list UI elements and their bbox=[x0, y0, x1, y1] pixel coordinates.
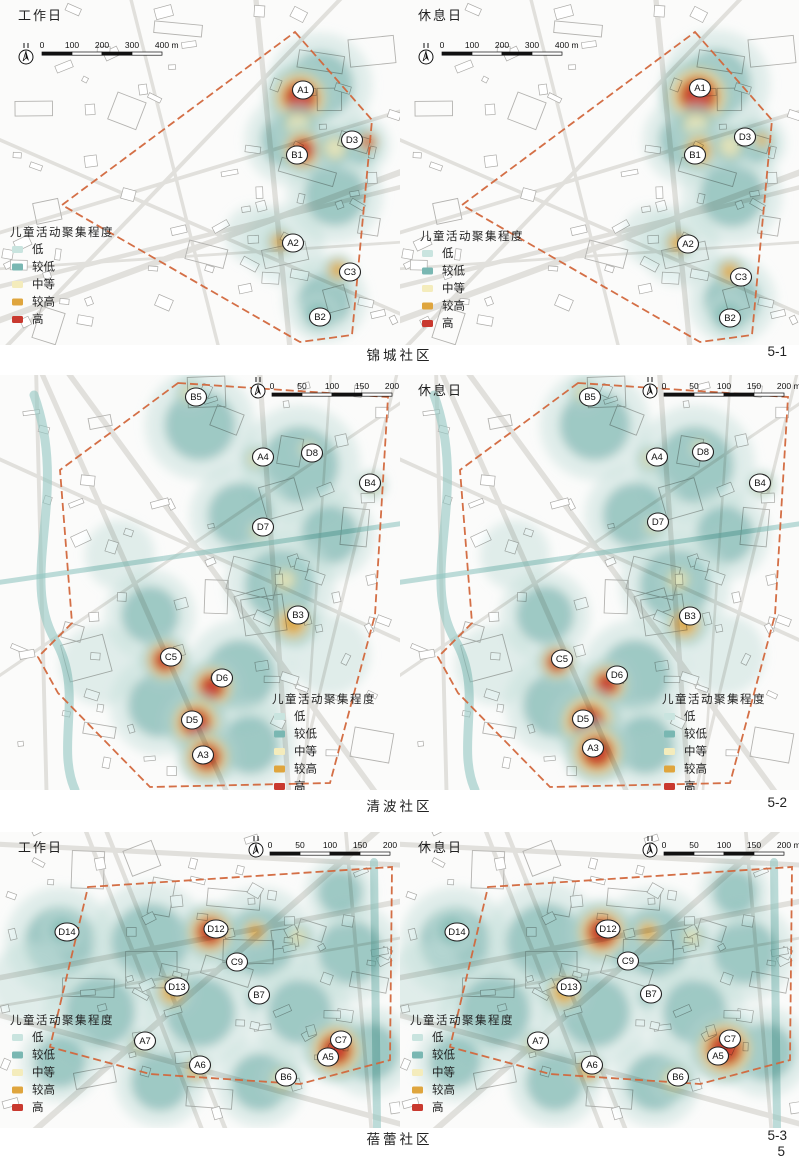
legend-label-4: 较高 bbox=[432, 1083, 455, 1097]
svg-text:D3: D3 bbox=[739, 132, 751, 143]
map-panel-qingbo-restday: 050100150200m休息日儿童活动聚集程度低较低中等较高高B5A4D8B4… bbox=[400, 375, 799, 790]
legend-label-1: 低 bbox=[32, 243, 44, 256]
svg-text:C5: C5 bbox=[556, 654, 568, 665]
poi-marker-C3: C3 bbox=[340, 263, 361, 281]
panel-title: 工作日 bbox=[18, 840, 63, 855]
legend-swatch-4 bbox=[274, 766, 285, 773]
poi-marker-A2: A2 bbox=[678, 235, 699, 253]
map-panel-jincheng-workday: 0100200300400m工作日儿童活动聚集程度低较低中等较高高A1D3B1A… bbox=[0, 0, 400, 345]
poi-marker-A7: A7 bbox=[135, 1032, 156, 1050]
poi-marker-B2: B2 bbox=[310, 308, 331, 326]
poi-marker-B3: B3 bbox=[680, 607, 701, 625]
panel-title: 工作日 bbox=[18, 8, 63, 23]
caption-row-qingbo: 清波社区 5-2 bbox=[0, 795, 799, 815]
poi-marker-D8: D8 bbox=[302, 444, 323, 462]
svg-text:150: 150 bbox=[353, 840, 367, 850]
svg-text:D14: D14 bbox=[58, 927, 75, 938]
poi-marker-D12: D12 bbox=[596, 920, 620, 938]
svg-text:D13: D13 bbox=[560, 982, 577, 993]
legend-swatch-2 bbox=[664, 731, 675, 738]
legend-swatch-3 bbox=[274, 748, 285, 755]
page-number: 5 bbox=[777, 1144, 785, 1159]
poi-marker-D14: D14 bbox=[445, 923, 469, 941]
legend-title: 儿童活动聚集程度 bbox=[272, 692, 376, 706]
svg-text:A7: A7 bbox=[139, 1036, 151, 1047]
legend-swatch-1 bbox=[12, 1034, 23, 1041]
legend-label-2: 较低 bbox=[432, 1048, 455, 1062]
community-name-jincheng: 锦城社区 bbox=[367, 344, 433, 364]
map-panel-beilei-workday: 050100150200m工作日儿童活动聚集程度低较低中等较高高D14D12C9… bbox=[0, 832, 400, 1128]
legend-label-2: 较低 bbox=[294, 727, 317, 741]
legend-swatch-4 bbox=[412, 1087, 423, 1094]
legend-label-4: 较高 bbox=[32, 1083, 55, 1097]
map-panel-jincheng-restday: 0100200300400m休息日儿童活动聚集程度低较低中等较高高A1D3B1A… bbox=[400, 0, 799, 345]
svg-text:B7: B7 bbox=[253, 990, 265, 1001]
svg-text:400: 400 bbox=[155, 40, 169, 50]
svg-text:100: 100 bbox=[717, 840, 731, 850]
poi-marker-D5: D5 bbox=[573, 710, 594, 728]
svg-text:100: 100 bbox=[323, 840, 337, 850]
figure-page: 0100200300400m工作日儿童活动聚集程度低较低中等较高高A1D3B1A… bbox=[0, 0, 799, 1165]
svg-text:D3: D3 bbox=[346, 135, 358, 146]
svg-text:D7: D7 bbox=[652, 517, 664, 528]
svg-text:0: 0 bbox=[440, 40, 445, 50]
legend-label-5: 高 bbox=[32, 312, 44, 326]
poi-marker-B7: B7 bbox=[249, 986, 270, 1004]
map-panel-qingbo-workday: 050100150200m儿童活动聚集程度低较低中等较高高B5A4D8B4D7B… bbox=[0, 375, 400, 790]
scale-unit: m bbox=[571, 40, 578, 50]
legend-label-5: 高 bbox=[432, 1100, 444, 1114]
poi-marker-D3: D3 bbox=[342, 131, 363, 149]
svg-text:50: 50 bbox=[297, 381, 307, 391]
legend-title: 儿童活动聚集程度 bbox=[10, 225, 114, 239]
poi-marker-D7: D7 bbox=[253, 518, 274, 536]
legend-swatch-1 bbox=[422, 250, 433, 257]
legend-swatch-3 bbox=[12, 281, 23, 288]
svg-text:100: 100 bbox=[325, 381, 339, 391]
scale-unit: m bbox=[793, 381, 799, 391]
legend-swatch-2 bbox=[422, 268, 433, 275]
svg-text:B7: B7 bbox=[645, 989, 657, 1000]
qingbo-workday-map: 050100150200m儿童活动聚集程度低较低中等较高高B5A4D8B4D7B… bbox=[0, 375, 400, 790]
legend-swatch-2 bbox=[12, 1052, 23, 1059]
scale-unit: m bbox=[171, 40, 178, 50]
svg-text:B5: B5 bbox=[584, 392, 596, 403]
poi-marker-A2: A2 bbox=[283, 234, 304, 252]
svg-text:A3: A3 bbox=[197, 750, 209, 761]
poi-marker-A5: A5 bbox=[318, 1048, 339, 1066]
svg-text:A6: A6 bbox=[194, 1060, 206, 1071]
svg-text:A4: A4 bbox=[257, 452, 269, 463]
legend-swatch-3 bbox=[12, 1069, 23, 1076]
svg-text:200: 200 bbox=[385, 381, 399, 391]
community-name-beilei: 蓓蕾社区 bbox=[367, 1128, 433, 1148]
svg-text:100: 100 bbox=[717, 381, 731, 391]
svg-text:200: 200 bbox=[777, 381, 791, 391]
legend-label-5: 高 bbox=[684, 779, 696, 790]
svg-text:A6: A6 bbox=[586, 1060, 598, 1071]
svg-text:B2: B2 bbox=[314, 312, 326, 323]
legend-label-2: 较低 bbox=[32, 1048, 55, 1062]
poi-marker-B5: B5 bbox=[580, 388, 601, 406]
svg-text:A1: A1 bbox=[297, 85, 309, 96]
poi-marker-C5: C5 bbox=[161, 648, 182, 666]
poi-marker-A3: A3 bbox=[583, 739, 604, 757]
legend-title: 儿童活动聚集程度 bbox=[420, 229, 524, 243]
poi-marker-A4: A4 bbox=[253, 448, 274, 466]
poi-marker-B6: B6 bbox=[276, 1068, 297, 1086]
svg-text:D12: D12 bbox=[207, 924, 224, 935]
svg-text:C3: C3 bbox=[735, 272, 747, 283]
poi-marker-D12: D12 bbox=[204, 920, 228, 938]
legend-swatch-4 bbox=[12, 299, 23, 306]
jincheng-workday-map: 0100200300400m工作日儿童活动聚集程度低较低中等较高高A1D3B1A… bbox=[0, 0, 400, 345]
svg-text:D5: D5 bbox=[186, 715, 198, 726]
poi-marker-A3: A3 bbox=[193, 746, 214, 764]
legend-swatch-1 bbox=[412, 1034, 423, 1041]
legend-swatch-2 bbox=[12, 264, 23, 271]
poi-marker-A1: A1 bbox=[293, 81, 314, 99]
panel-title: 休息日 bbox=[418, 840, 463, 855]
beilei-restday-map: 050100150200m休息日儿童活动聚集程度低较低中等较高高D14D12C9… bbox=[400, 832, 799, 1128]
legend-swatch-5 bbox=[422, 320, 433, 327]
poi-marker-D8: D8 bbox=[693, 443, 714, 461]
svg-text:B3: B3 bbox=[292, 610, 304, 621]
legend-label-2: 较低 bbox=[684, 727, 707, 741]
svg-text:C7: C7 bbox=[335, 1035, 347, 1046]
poi-marker-B1: B1 bbox=[685, 146, 706, 164]
legend-label-1: 低 bbox=[442, 247, 454, 260]
svg-text:150: 150 bbox=[747, 381, 761, 391]
svg-text:C9: C9 bbox=[231, 957, 243, 968]
legend-swatch-5 bbox=[412, 1104, 423, 1111]
legend-label-3: 中等 bbox=[684, 744, 707, 758]
legend-swatch-5 bbox=[12, 316, 23, 323]
poi-marker-B4: B4 bbox=[750, 474, 771, 492]
svg-text:0: 0 bbox=[268, 840, 273, 850]
svg-text:B5: B5 bbox=[190, 392, 202, 403]
svg-text:A1: A1 bbox=[694, 83, 706, 94]
svg-text:A5: A5 bbox=[322, 1052, 334, 1063]
figure-number-jincheng: 5-1 bbox=[767, 344, 787, 359]
caption-row-jincheng: 锦城社区 5-1 bbox=[0, 344, 799, 364]
poi-marker-C9: C9 bbox=[618, 952, 639, 970]
poi-marker-B6: B6 bbox=[668, 1068, 689, 1086]
poi-marker-A6: A6 bbox=[582, 1056, 603, 1074]
legend-swatch-4 bbox=[12, 1087, 23, 1094]
poi-marker-B4: B4 bbox=[360, 474, 381, 492]
svg-text:C3: C3 bbox=[344, 267, 356, 278]
jincheng-restday-map: 0100200300400m休息日儿童活动聚集程度低较低中等较高高A1D3B1A… bbox=[400, 0, 799, 345]
qingbo-restday-map: 050100150200m休息日儿童活动聚集程度低较低中等较高高B5A4D8B4… bbox=[400, 375, 799, 790]
legend-swatch-4 bbox=[664, 766, 675, 773]
poi-marker-C7: C7 bbox=[720, 1030, 741, 1048]
svg-text:300: 300 bbox=[525, 40, 539, 50]
beilei-workday-map: 050100150200m工作日儿童活动聚集程度低较低中等较高高D14D12C9… bbox=[0, 832, 400, 1128]
legend-label-4: 较高 bbox=[32, 295, 55, 309]
legend-swatch-3 bbox=[412, 1069, 423, 1076]
svg-text:B1: B1 bbox=[689, 150, 701, 161]
svg-text:D14: D14 bbox=[448, 927, 465, 938]
poi-marker-B1: B1 bbox=[287, 146, 308, 164]
svg-text:A2: A2 bbox=[682, 239, 694, 250]
legend-label-1: 低 bbox=[684, 710, 696, 723]
legend-title: 儿童活动聚集程度 bbox=[662, 692, 766, 706]
legend-swatch-3 bbox=[664, 748, 675, 755]
poi-marker-D5: D5 bbox=[182, 711, 203, 729]
svg-text:D6: D6 bbox=[216, 673, 228, 684]
svg-text:D8: D8 bbox=[697, 447, 709, 458]
svg-text:0: 0 bbox=[270, 381, 275, 391]
poi-marker-A6: A6 bbox=[190, 1056, 211, 1074]
svg-text:B2: B2 bbox=[724, 313, 736, 324]
svg-text:100: 100 bbox=[465, 40, 479, 50]
svg-text:B6: B6 bbox=[280, 1072, 292, 1083]
panel-title: 休息日 bbox=[418, 8, 463, 23]
legend-label-1: 低 bbox=[32, 1031, 44, 1044]
svg-text:B4: B4 bbox=[754, 478, 766, 489]
svg-text:300: 300 bbox=[125, 40, 139, 50]
poi-marker-D7: D7 bbox=[648, 513, 669, 531]
poi-marker-B2: B2 bbox=[720, 309, 741, 327]
legend-swatch-2 bbox=[412, 1052, 423, 1059]
legend-label-3: 中等 bbox=[294, 744, 317, 758]
map-panel-beilei-restday: 050100150200m休息日儿童活动聚集程度低较低中等较高高D14D12C9… bbox=[400, 832, 799, 1128]
scale-unit: m bbox=[793, 840, 799, 850]
legend-label-4: 较高 bbox=[442, 299, 465, 313]
poi-marker-B7: B7 bbox=[641, 985, 662, 1003]
caption-row-beilei: 蓓蕾社区 5-3 bbox=[0, 1128, 799, 1148]
poi-marker-B5: B5 bbox=[186, 388, 207, 406]
svg-text:A7: A7 bbox=[532, 1036, 544, 1047]
svg-text:B3: B3 bbox=[684, 611, 696, 622]
poi-marker-C9: C9 bbox=[227, 953, 248, 971]
legend-title: 儿童活动聚集程度 bbox=[10, 1013, 114, 1027]
legend-label-3: 中等 bbox=[442, 281, 465, 295]
svg-text:50: 50 bbox=[689, 381, 699, 391]
legend-label-4: 较高 bbox=[684, 762, 707, 776]
figure-number-qingbo: 5-2 bbox=[767, 795, 787, 810]
svg-text:D5: D5 bbox=[577, 714, 589, 725]
svg-text:0: 0 bbox=[662, 381, 667, 391]
svg-text:D6: D6 bbox=[611, 670, 623, 681]
svg-text:D12: D12 bbox=[599, 924, 616, 935]
legend-swatch-1 bbox=[664, 713, 675, 720]
poi-marker-D13: D13 bbox=[557, 978, 581, 996]
svg-text:C9: C9 bbox=[622, 956, 634, 967]
legend-swatch-4 bbox=[422, 303, 433, 310]
svg-text:150: 150 bbox=[355, 381, 369, 391]
figure-number-beilei: 5-3 bbox=[767, 1128, 787, 1143]
panel-title: 休息日 bbox=[418, 383, 463, 398]
svg-text:A4: A4 bbox=[651, 452, 663, 463]
svg-text:A3: A3 bbox=[587, 743, 599, 754]
poi-marker-C5: C5 bbox=[552, 650, 573, 668]
svg-text:C5: C5 bbox=[165, 652, 177, 663]
legend-swatch-1 bbox=[12, 246, 23, 253]
svg-text:A5: A5 bbox=[712, 1051, 724, 1062]
svg-text:0: 0 bbox=[662, 840, 667, 850]
svg-text:200: 200 bbox=[383, 840, 397, 850]
poi-marker-A5: A5 bbox=[708, 1047, 729, 1065]
legend-label-2: 较低 bbox=[32, 260, 55, 274]
poi-marker-D13: D13 bbox=[165, 978, 189, 996]
poi-marker-D3: D3 bbox=[735, 128, 756, 146]
legend-label-3: 中等 bbox=[432, 1065, 455, 1079]
svg-text:100: 100 bbox=[65, 40, 79, 50]
legend-label-5: 高 bbox=[32, 1100, 44, 1114]
poi-marker-A1: A1 bbox=[690, 79, 711, 97]
svg-text:0: 0 bbox=[40, 40, 45, 50]
poi-marker-C7: C7 bbox=[331, 1031, 352, 1049]
legend-label-5: 高 bbox=[442, 316, 454, 330]
svg-text:D13: D13 bbox=[168, 982, 185, 993]
legend-label-1: 低 bbox=[294, 710, 306, 723]
poi-marker-D6: D6 bbox=[212, 669, 233, 687]
poi-marker-B3: B3 bbox=[288, 606, 309, 624]
svg-text:A2: A2 bbox=[287, 238, 299, 249]
poi-marker-D14: D14 bbox=[55, 923, 79, 941]
svg-text:150: 150 bbox=[747, 840, 761, 850]
legend-swatch-1 bbox=[274, 713, 285, 720]
svg-text:200: 200 bbox=[777, 840, 791, 850]
legend-swatch-3 bbox=[422, 285, 433, 292]
legend-title: 儿童活动聚集程度 bbox=[410, 1013, 514, 1027]
legend-swatch-5 bbox=[664, 783, 675, 790]
legend-label-2: 较低 bbox=[442, 264, 465, 278]
svg-text:50: 50 bbox=[295, 840, 305, 850]
legend-label-3: 中等 bbox=[32, 1065, 55, 1079]
legend-label-1: 低 bbox=[432, 1031, 444, 1044]
svg-text:50: 50 bbox=[689, 840, 699, 850]
poi-marker-A7: A7 bbox=[528, 1032, 549, 1050]
legend-swatch-2 bbox=[274, 731, 285, 738]
svg-text:C7: C7 bbox=[724, 1034, 736, 1045]
svg-text:B4: B4 bbox=[364, 478, 376, 489]
poi-marker-D6: D6 bbox=[607, 666, 628, 684]
community-name-qingbo: 清波社区 bbox=[367, 795, 433, 815]
svg-text:D7: D7 bbox=[257, 522, 269, 533]
legend-label-4: 较高 bbox=[294, 762, 317, 776]
svg-text:200: 200 bbox=[95, 40, 109, 50]
legend-swatch-5 bbox=[12, 1104, 23, 1111]
poi-marker-A4: A4 bbox=[647, 448, 668, 466]
svg-text:D8: D8 bbox=[306, 448, 318, 459]
legend-swatch-5 bbox=[274, 783, 285, 790]
svg-text:B6: B6 bbox=[672, 1072, 684, 1083]
svg-text:B1: B1 bbox=[291, 150, 303, 161]
legend-label-3: 中等 bbox=[32, 277, 55, 291]
poi-marker-C3: C3 bbox=[731, 268, 752, 286]
svg-text:400: 400 bbox=[555, 40, 569, 50]
legend-label-5: 高 bbox=[294, 779, 306, 790]
svg-text:200: 200 bbox=[495, 40, 509, 50]
